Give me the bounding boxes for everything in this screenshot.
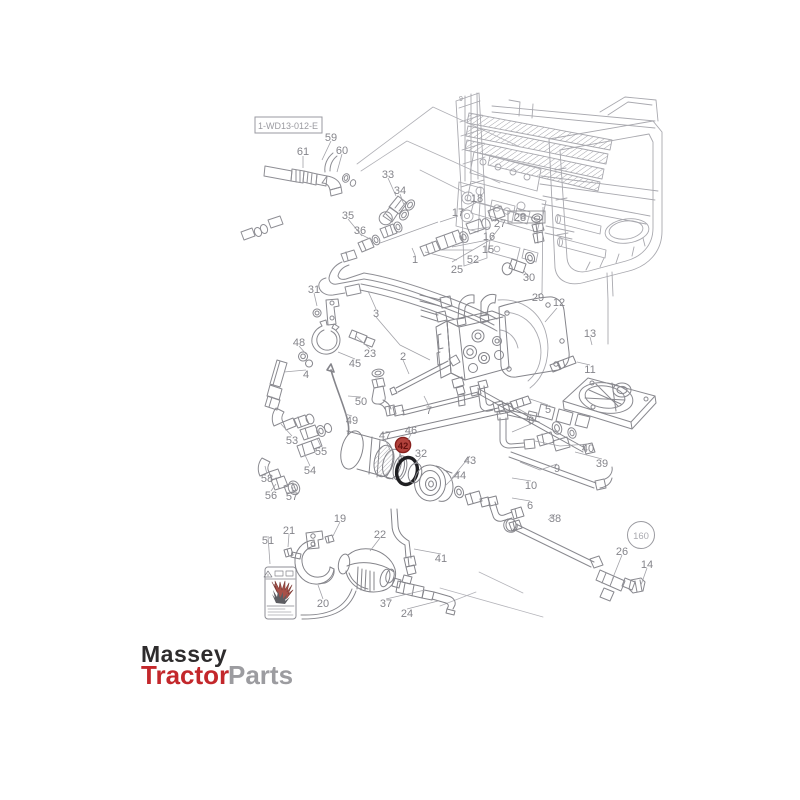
svg-text:36: 36 <box>354 225 366 237</box>
svg-text:34: 34 <box>394 185 406 197</box>
svg-text:40: 40 <box>582 443 594 455</box>
svg-text:11: 11 <box>584 364 595 376</box>
svg-text:2: 2 <box>400 351 406 363</box>
svg-text:22: 22 <box>374 529 386 541</box>
svg-text:44: 44 <box>454 470 466 482</box>
svg-text:21: 21 <box>283 525 295 537</box>
svg-text:55: 55 <box>315 446 327 458</box>
svg-text:42: 42 <box>398 441 409 452</box>
svg-text:Parts: Parts <box>228 660 293 690</box>
svg-text:Tractor: Tractor <box>141 660 229 690</box>
svg-text:1: 1 <box>412 254 418 266</box>
svg-text:3: 3 <box>373 308 379 320</box>
svg-text:31: 31 <box>308 284 320 296</box>
svg-text:56: 56 <box>265 490 277 502</box>
svg-text:48: 48 <box>293 337 305 349</box>
svg-text:27: 27 <box>494 218 506 230</box>
svg-text:19: 19 <box>334 513 346 525</box>
svg-text:24: 24 <box>401 608 413 620</box>
svg-text:7: 7 <box>426 405 432 417</box>
svg-text:43: 43 <box>464 455 476 467</box>
svg-text:25: 25 <box>451 264 463 276</box>
svg-text:39: 39 <box>596 458 608 470</box>
svg-text:16: 16 <box>483 231 495 243</box>
svg-text:23: 23 <box>364 348 376 360</box>
svg-text:32: 32 <box>415 448 427 460</box>
svg-text:160: 160 <box>633 531 649 542</box>
svg-text:45: 45 <box>349 358 361 370</box>
svg-text:8: 8 <box>528 415 534 427</box>
svg-text:4: 4 <box>303 369 309 381</box>
svg-text:30: 30 <box>523 272 535 284</box>
svg-text:18: 18 <box>471 193 483 205</box>
svg-text:15: 15 <box>482 244 494 256</box>
svg-text:6: 6 <box>527 500 533 512</box>
svg-text:17: 17 <box>452 207 464 219</box>
svg-text:51: 51 <box>262 535 274 547</box>
svg-text:60: 60 <box>336 145 348 157</box>
svg-text:35: 35 <box>342 210 354 222</box>
svg-text:5: 5 <box>545 404 551 416</box>
svg-text:13: 13 <box>584 328 596 340</box>
svg-text:49: 49 <box>346 415 358 427</box>
svg-text:57: 57 <box>286 491 298 503</box>
svg-text:53: 53 <box>286 435 298 447</box>
svg-text:41: 41 <box>435 553 447 565</box>
svg-text:38: 38 <box>549 513 561 525</box>
svg-text:37: 37 <box>380 598 392 610</box>
svg-text:54: 54 <box>304 465 316 477</box>
svg-text:47: 47 <box>379 430 391 442</box>
svg-text:52: 52 <box>467 254 479 266</box>
svg-text:50: 50 <box>355 396 367 408</box>
svg-text:29: 29 <box>532 292 544 304</box>
svg-text:9: 9 <box>459 96 463 103</box>
svg-text:58: 58 <box>261 473 273 485</box>
svg-text:12: 12 <box>553 297 565 309</box>
svg-text:59: 59 <box>325 132 337 144</box>
svg-text:10: 10 <box>525 480 537 492</box>
svg-text:46: 46 <box>405 425 417 437</box>
svg-text:14: 14 <box>641 559 653 571</box>
svg-text:61: 61 <box>297 146 309 158</box>
svg-text:28: 28 <box>514 212 526 224</box>
svg-text:1-WD13-012-E: 1-WD13-012-E <box>258 121 318 131</box>
svg-text:26: 26 <box>616 546 628 558</box>
svg-text:20: 20 <box>317 598 329 610</box>
svg-text:33: 33 <box>382 169 394 181</box>
svg-text:9: 9 <box>554 463 560 475</box>
